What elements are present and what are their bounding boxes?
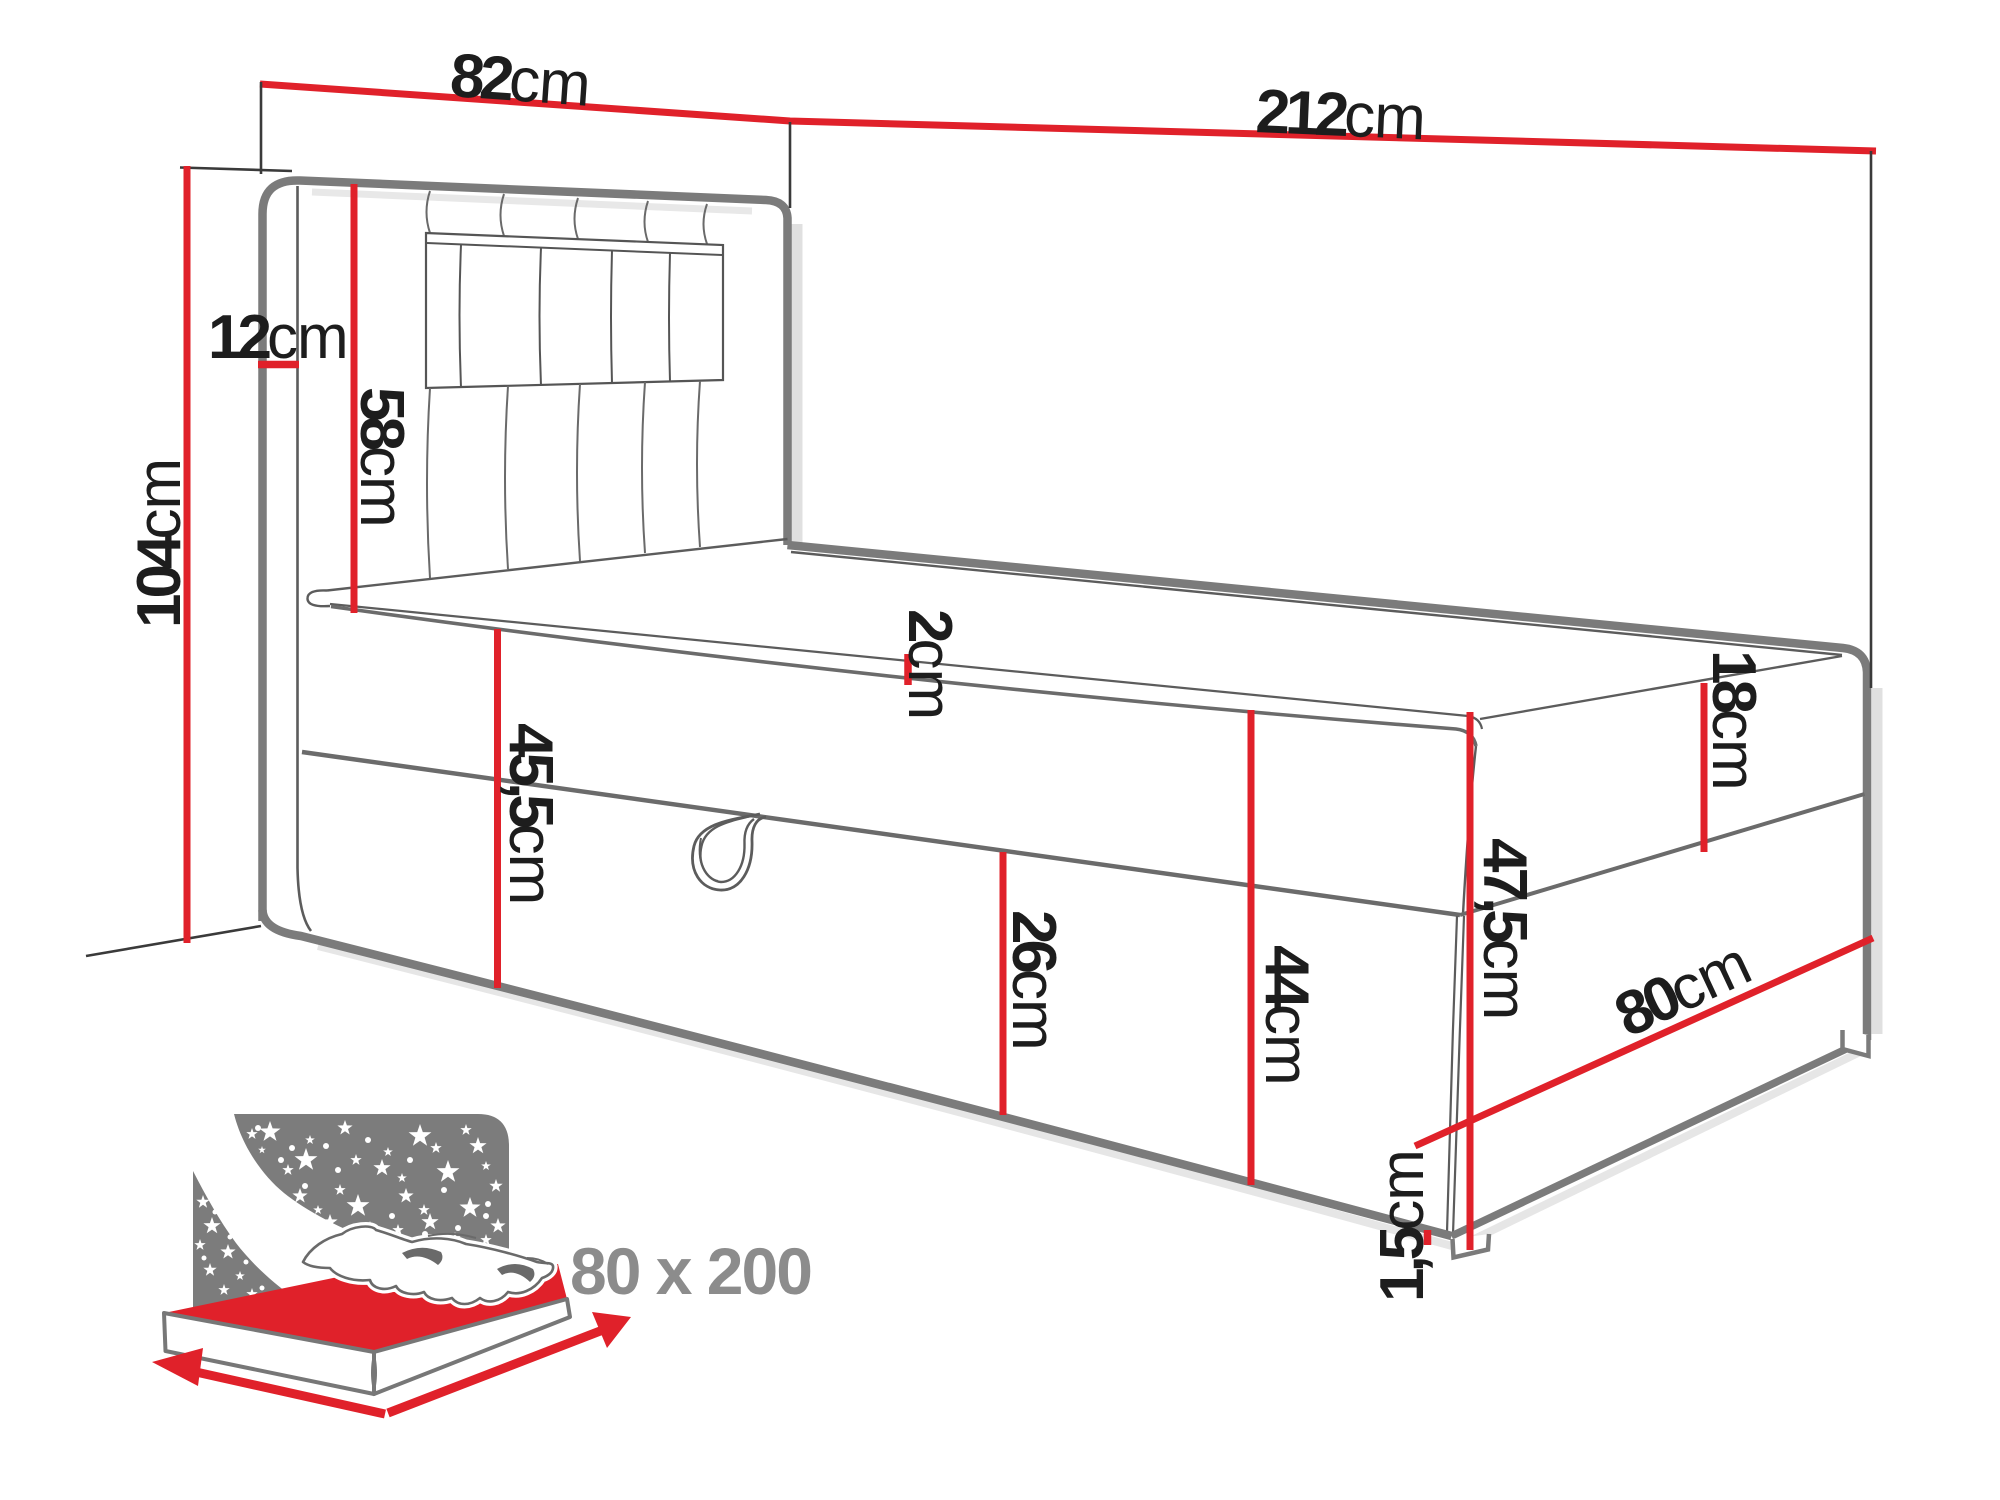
svg-text:18cm: 18cm bbox=[1699, 650, 1768, 790]
svg-text:47,5cm: 47,5cm bbox=[1470, 838, 1539, 1019]
svg-text:104cm: 104cm bbox=[125, 459, 194, 628]
svg-text:212cm: 212cm bbox=[1254, 77, 1426, 153]
svg-text:58cm: 58cm bbox=[347, 387, 416, 527]
svg-text:80 x 200: 80 x 200 bbox=[570, 1234, 811, 1308]
svg-text:44cm: 44cm bbox=[1252, 945, 1321, 1085]
svg-text:12cm: 12cm bbox=[208, 303, 348, 372]
svg-text:45,5cm: 45,5cm bbox=[496, 723, 565, 904]
svg-text:82cm: 82cm bbox=[448, 41, 592, 120]
svg-text:26cm: 26cm bbox=[999, 910, 1068, 1050]
svg-text:1,5cm: 1,5cm bbox=[1368, 1150, 1437, 1302]
svg-text:2cm: 2cm bbox=[895, 609, 964, 719]
